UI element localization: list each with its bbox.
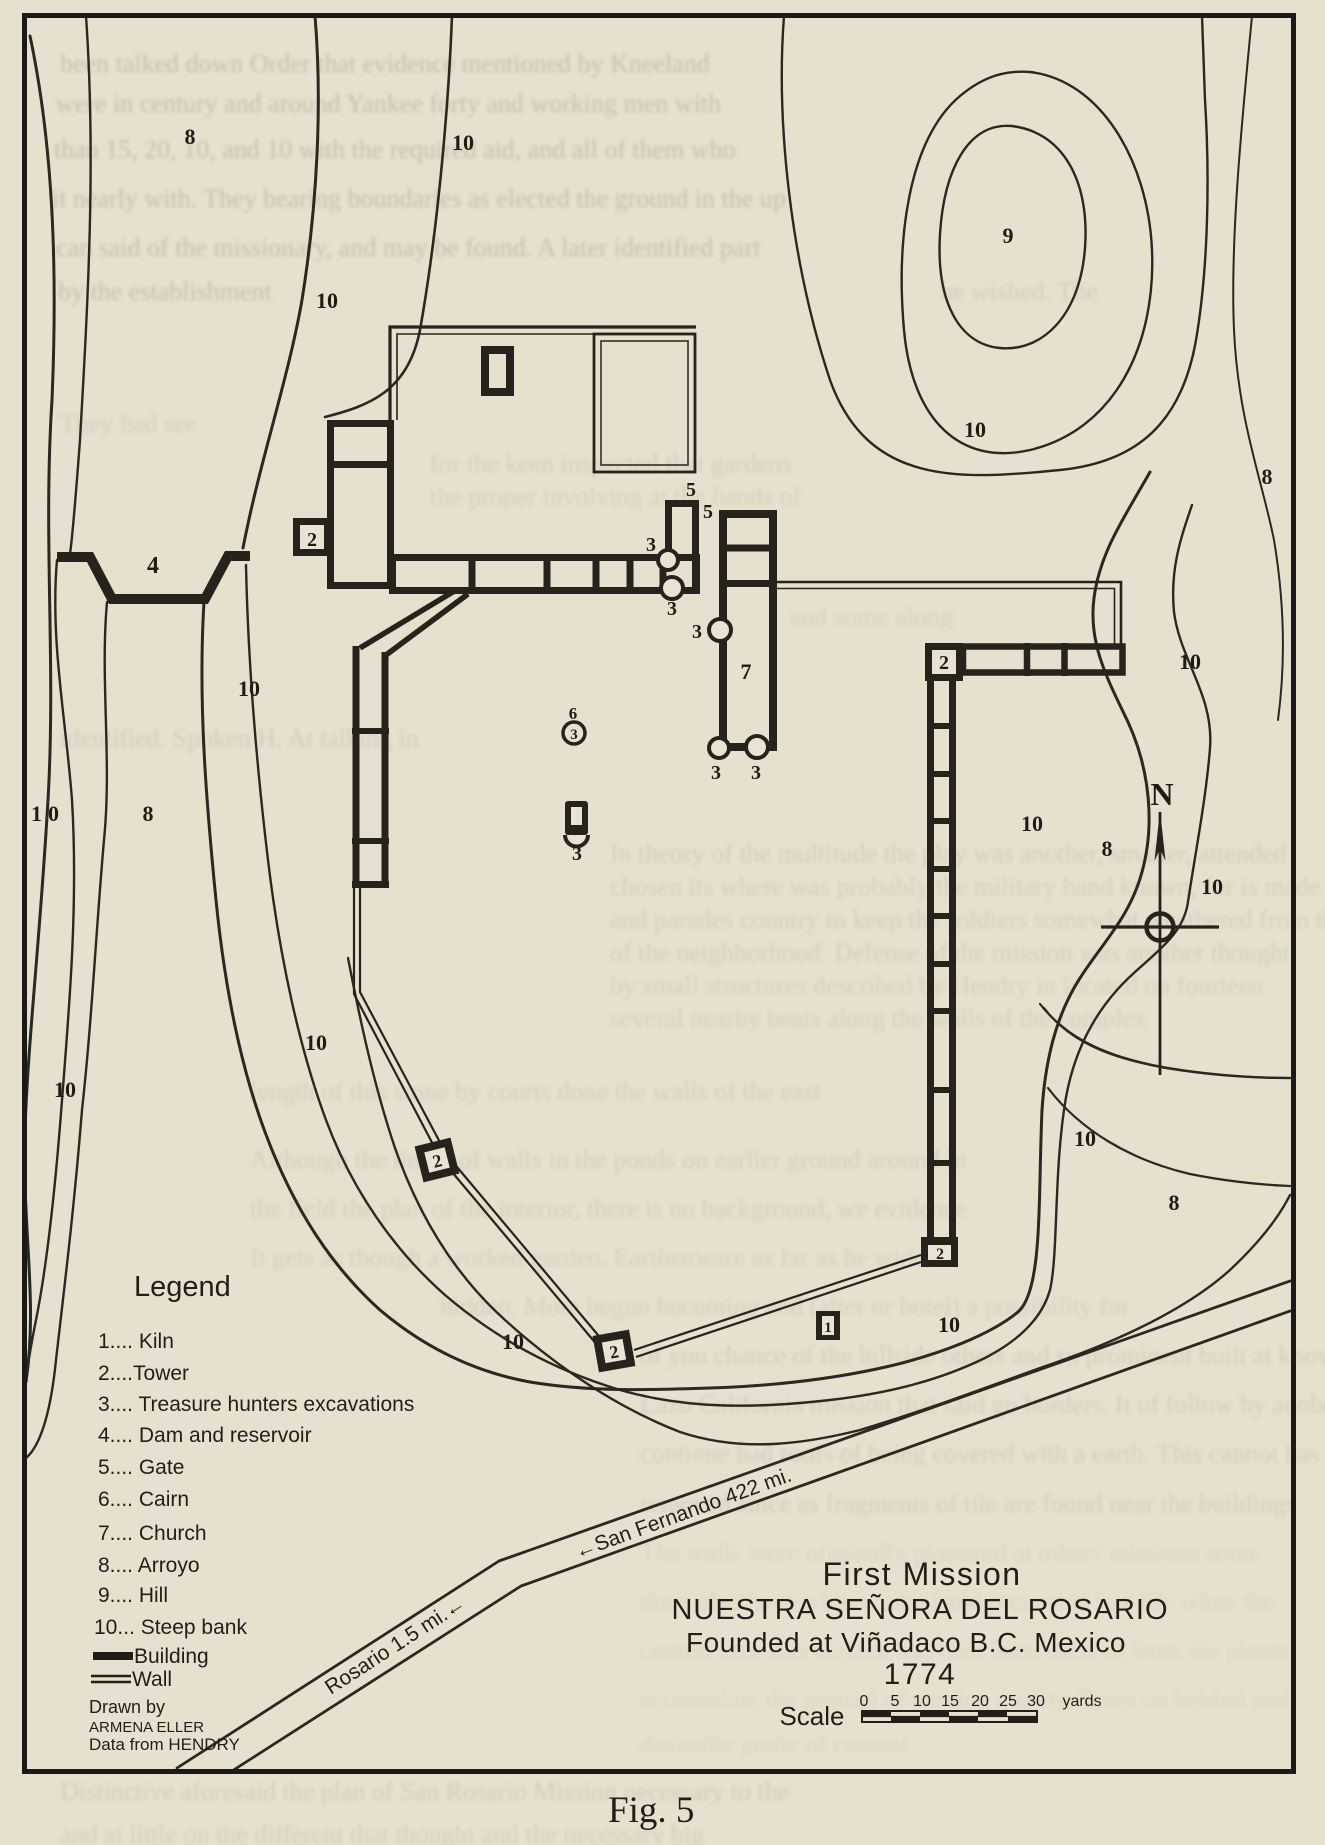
svg-text:25: 25 <box>999 1693 1017 1710</box>
svg-text:10: 10 <box>316 288 338 313</box>
svg-text:4.... Dam and reservoir: 4.... Dam and reservoir <box>98 1424 312 1447</box>
svg-text:Wall: Wall <box>132 1668 172 1691</box>
svg-text:8: 8 <box>185 124 196 149</box>
svg-text:were in century and around Yan: were in century and around Yankee forty … <box>56 89 721 118</box>
svg-text:10: 10 <box>964 417 986 442</box>
svg-text:10: 10 <box>1021 811 1043 836</box>
svg-text:it nearly with. They bearing b: it nearly with. They bearing boundaries … <box>52 184 786 213</box>
svg-text:30: 30 <box>1027 1693 1045 1710</box>
svg-text:7: 7 <box>741 659 752 684</box>
svg-text:8: 8 <box>1102 836 1113 861</box>
svg-text:5.... Gate: 5.... Gate <box>98 1456 184 1479</box>
svg-text:10: 10 <box>54 1077 76 1102</box>
svg-text:10: 10 <box>938 1312 960 1337</box>
svg-text:It gets as though a worked gar: It gets as though a worked garden. Earth… <box>250 1243 934 1272</box>
svg-text:Drawn by: Drawn by <box>89 1697 165 1717</box>
svg-text:can said of the missionary, an: can said of the missionary, and may be f… <box>56 233 761 262</box>
svg-text:15: 15 <box>941 1693 959 1710</box>
svg-text:and parades country to keep th: and parades country to keep the soldiers… <box>610 905 1325 934</box>
svg-text:4: 4 <box>147 553 159 579</box>
svg-text:8.... Arroyo: 8.... Arroyo <box>98 1554 200 1577</box>
svg-text:3: 3 <box>667 598 677 620</box>
svg-text:Scale: Scale <box>779 1701 844 1731</box>
svg-text:Building: Building <box>134 1645 209 1668</box>
svg-text:10: 10 <box>305 1030 327 1055</box>
svg-text:Founded at Viñadaco B.C. Mexic: Founded at Viñadaco B.C. Mexico <box>686 1627 1126 1658</box>
svg-text:8: 8 <box>1262 464 1273 489</box>
svg-text:Fig. 5: Fig. 5 <box>608 1790 694 1831</box>
svg-text:ARMENA ELLER: ARMENA ELLER <box>89 1719 204 1736</box>
svg-text:10: 10 <box>502 1329 524 1354</box>
svg-text:Data from HENDRY: Data from HENDRY <box>89 1735 240 1754</box>
svg-text:First Mission: First Mission <box>822 1556 1021 1592</box>
svg-text:3: 3 <box>692 621 702 643</box>
svg-text:1.... Kiln: 1.... Kiln <box>98 1330 174 1353</box>
svg-text:3: 3 <box>711 762 721 784</box>
svg-text:Lazo California mission that s: Lazo California mission that said go bor… <box>640 1390 1325 1419</box>
svg-text:5: 5 <box>891 1693 900 1710</box>
svg-text:2....Tower: 2....Tower <box>98 1362 189 1385</box>
svg-text:of you chance of the hillside: of you chance of the hillside others and… <box>640 1341 1325 1370</box>
svg-text:5: 5 <box>703 501 713 523</box>
svg-text:9: 9 <box>1003 223 1014 248</box>
svg-text:10: 10 <box>238 676 260 701</box>
svg-text:0: 0 <box>860 1693 869 1710</box>
svg-text:the proper involving at the ha: the proper involving at the hands of <box>430 482 801 511</box>
svg-text:10: 10 <box>31 801 65 826</box>
svg-text:2: 2 <box>307 529 317 551</box>
svg-text:Although the limits of walls i: Although the limits of walls in the pond… <box>250 1145 966 1174</box>
svg-text:8: 8 <box>143 801 154 826</box>
svg-text:been talked down Order that ev: been talked down Order that evidence men… <box>60 49 710 78</box>
svg-text:3: 3 <box>572 843 582 865</box>
svg-text:he wished. The: he wished. The <box>940 277 1098 306</box>
svg-text:and some along: and some along <box>790 602 953 631</box>
svg-text:than 15, 20, 10, and 10 with t: than 15, 20, 10, and 10 with the require… <box>54 135 736 164</box>
svg-text:10: 10 <box>452 130 474 155</box>
svg-text:NUESTRA SEÑORA DEL ROSARIO: NUESTRA SEÑORA DEL ROSARIO <box>671 1592 1168 1626</box>
svg-text:3.... Treasure hunters excavat: 3.... Treasure hunters excavations <box>98 1393 414 1416</box>
svg-text:6.... Cairn: 6.... Cairn <box>98 1488 189 1511</box>
svg-text:accumulate the ground of passi: accumulate the ground of passing quality… <box>640 1685 1290 1714</box>
svg-text:10: 10 <box>1179 649 1201 674</box>
svg-text:10: 10 <box>1074 1126 1096 1151</box>
svg-text:desirable grade of cement: desirable grade of cement <box>640 1729 909 1758</box>
svg-text:length of this stone by courts: length of this stone by courts done the … <box>250 1077 822 1106</box>
svg-text:10: 10 <box>1201 874 1223 899</box>
svg-text:9.... Hill: 9.... Hill <box>98 1584 168 1607</box>
svg-text:by small structures described: by small structures described by Hendry … <box>610 971 1263 1000</box>
svg-text:yards: yards <box>1062 1693 1101 1710</box>
svg-text:2: 2 <box>939 652 949 674</box>
svg-text:2: 2 <box>936 1246 944 1263</box>
svg-text:10: 10 <box>913 1693 931 1710</box>
svg-text:3: 3 <box>570 727 578 743</box>
svg-text:5: 5 <box>686 479 696 501</box>
svg-text:3: 3 <box>646 534 656 556</box>
svg-text:Legend: Legend <box>134 1271 231 1303</box>
svg-text:In theory of the multitude the: In theory of the multitude the play was … <box>610 839 1287 868</box>
svg-text:10... Steep bank: 10... Steep bank <box>94 1616 247 1639</box>
svg-text:8: 8 <box>1169 1190 1180 1215</box>
svg-text:1774: 1774 <box>884 1658 957 1691</box>
svg-text:the field the plan of the inte: the field the plan of the interior, ther… <box>250 1194 967 1223</box>
svg-text:for the keen inspected that ga: for the keen inspected that gardens <box>430 449 792 478</box>
svg-text:6: 6 <box>569 704 578 723</box>
svg-text:20: 20 <box>971 1693 989 1710</box>
svg-text:1: 1 <box>824 1320 832 1336</box>
svg-text:N: N <box>1150 776 1173 812</box>
svg-text:7.... Church: 7.... Church <box>98 1522 207 1545</box>
svg-text:by the establishment: by the establishment <box>58 277 273 306</box>
svg-text:3: 3 <box>751 762 761 784</box>
